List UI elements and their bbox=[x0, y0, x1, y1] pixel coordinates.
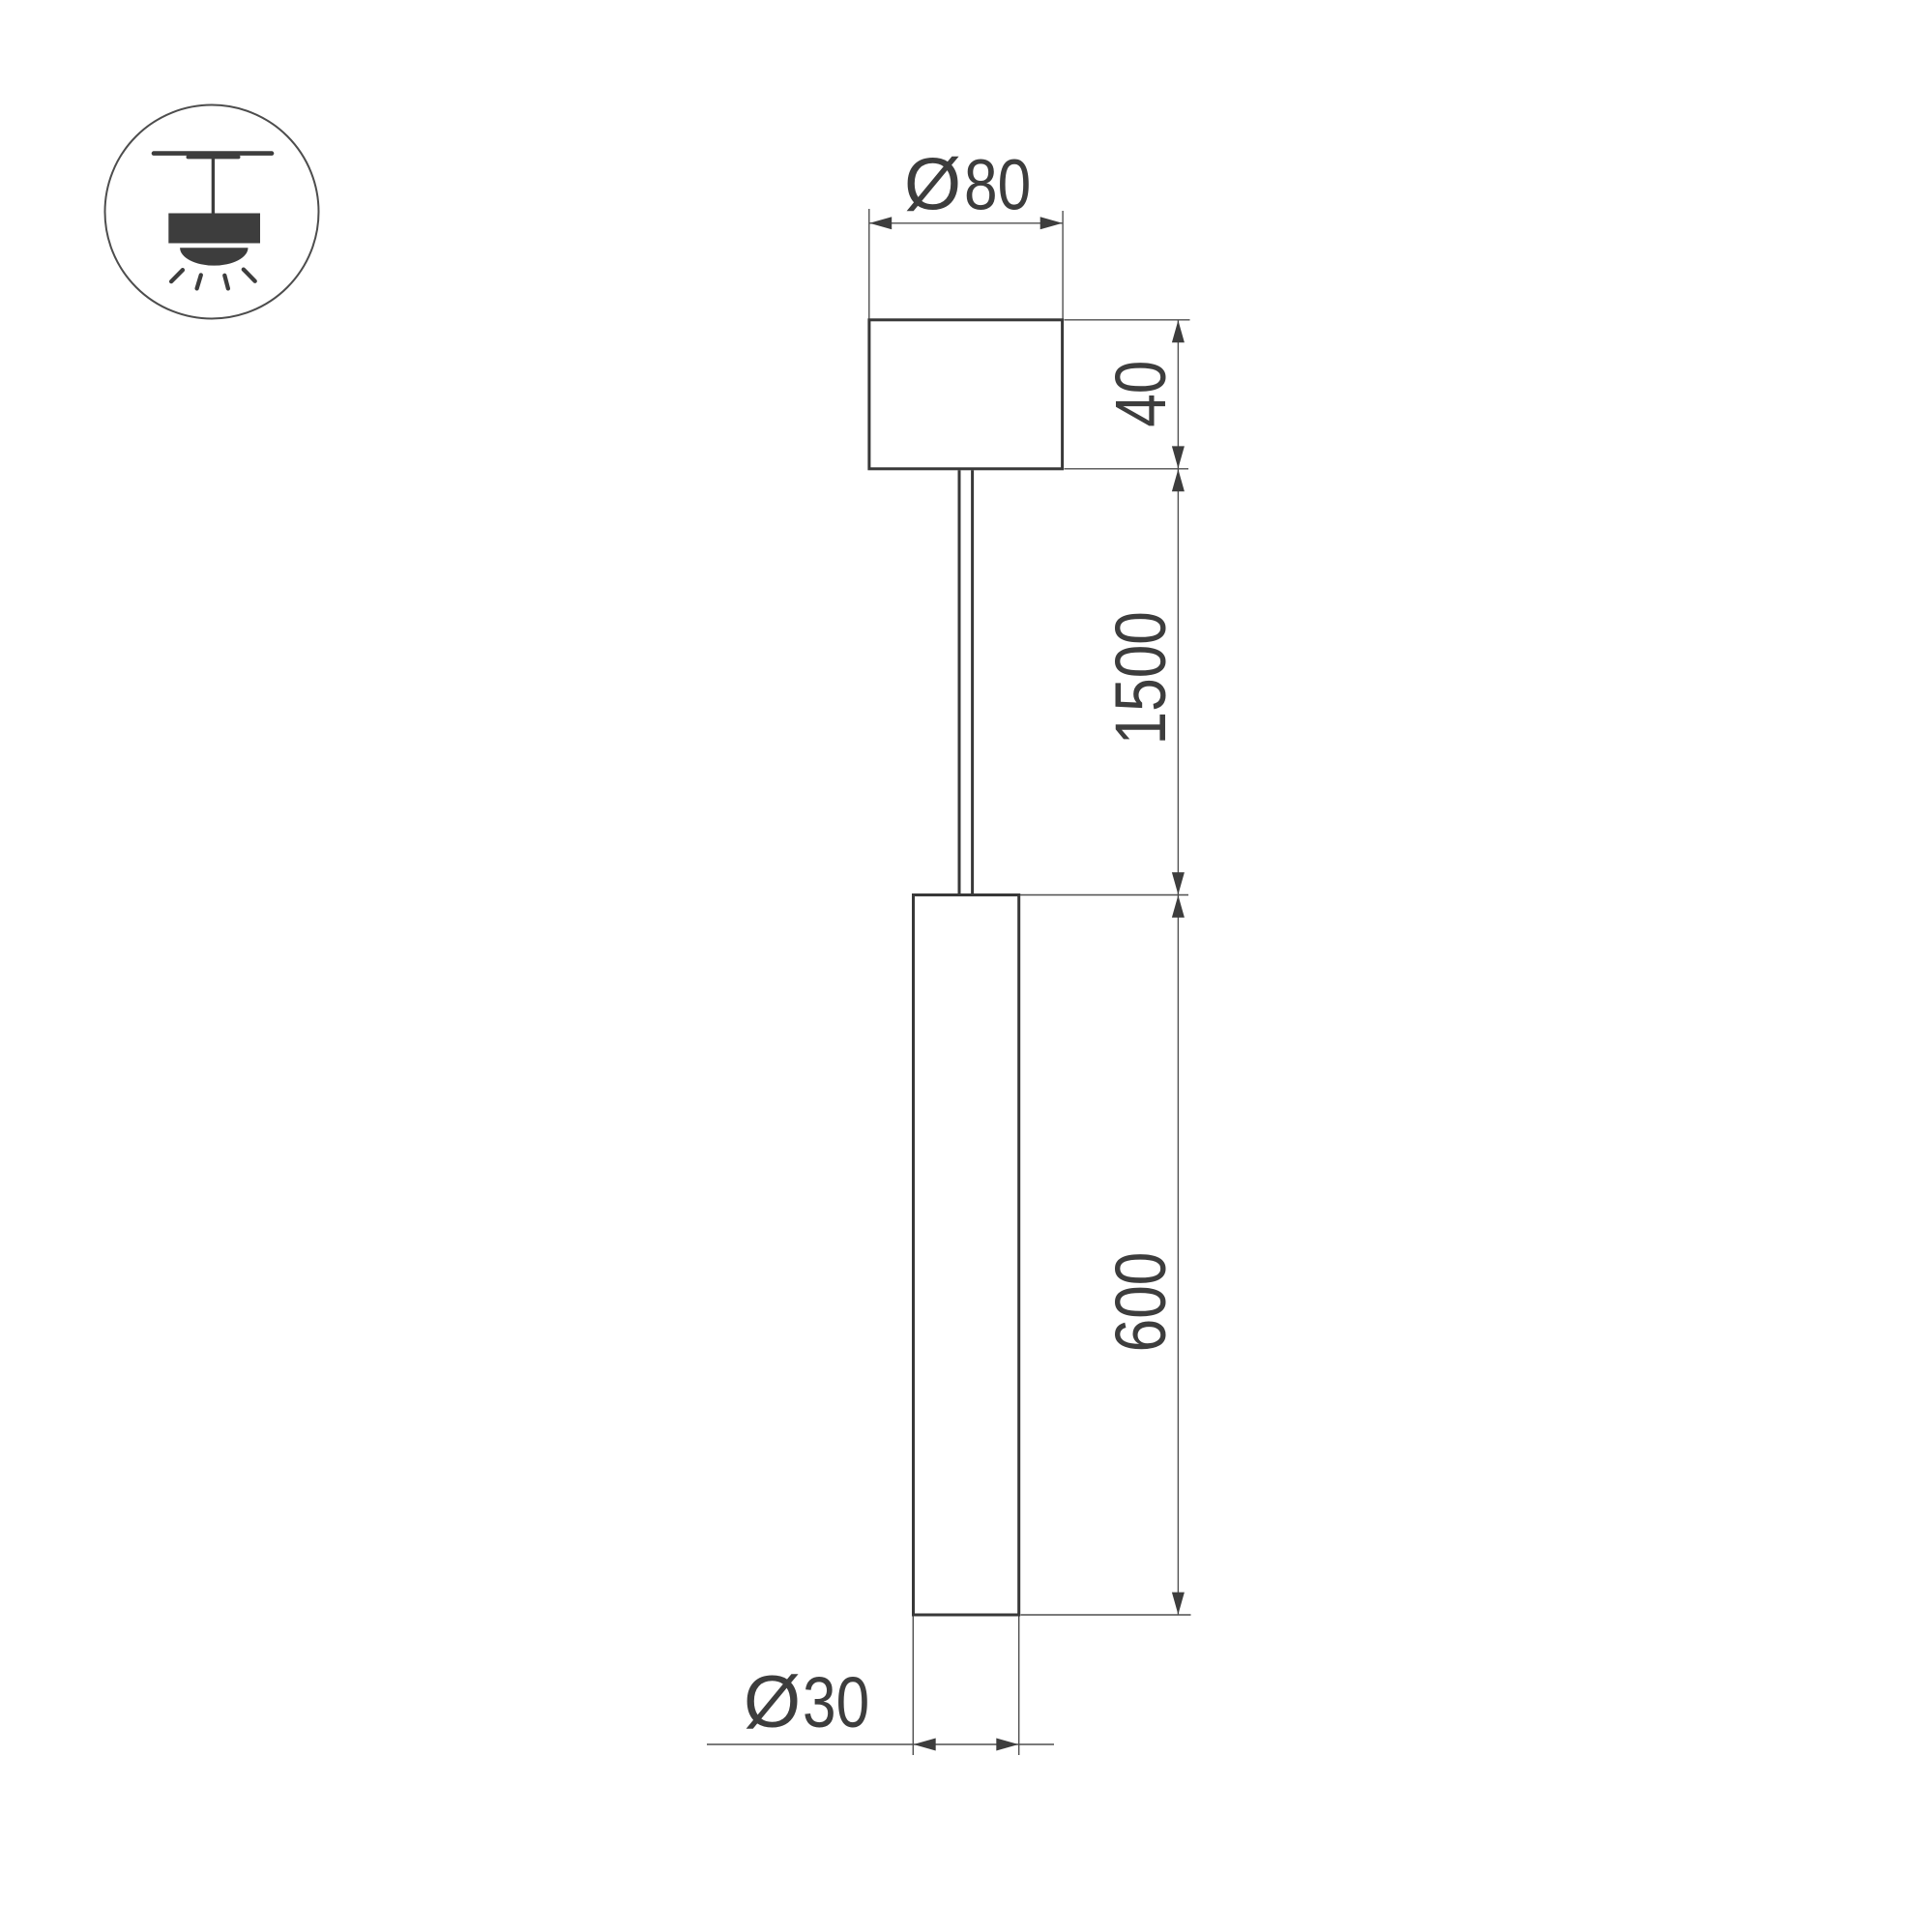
svg-text:1500: 1500 bbox=[1101, 611, 1181, 745]
svg-text:30: 30 bbox=[803, 1663, 869, 1742]
svg-text:Ø: Ø bbox=[904, 144, 961, 226]
svg-text:600: 600 bbox=[1101, 1252, 1181, 1353]
svg-text:40: 40 bbox=[1101, 361, 1181, 427]
svg-text:Ø: Ø bbox=[744, 1661, 801, 1743]
svg-text:80: 80 bbox=[964, 145, 1031, 224]
